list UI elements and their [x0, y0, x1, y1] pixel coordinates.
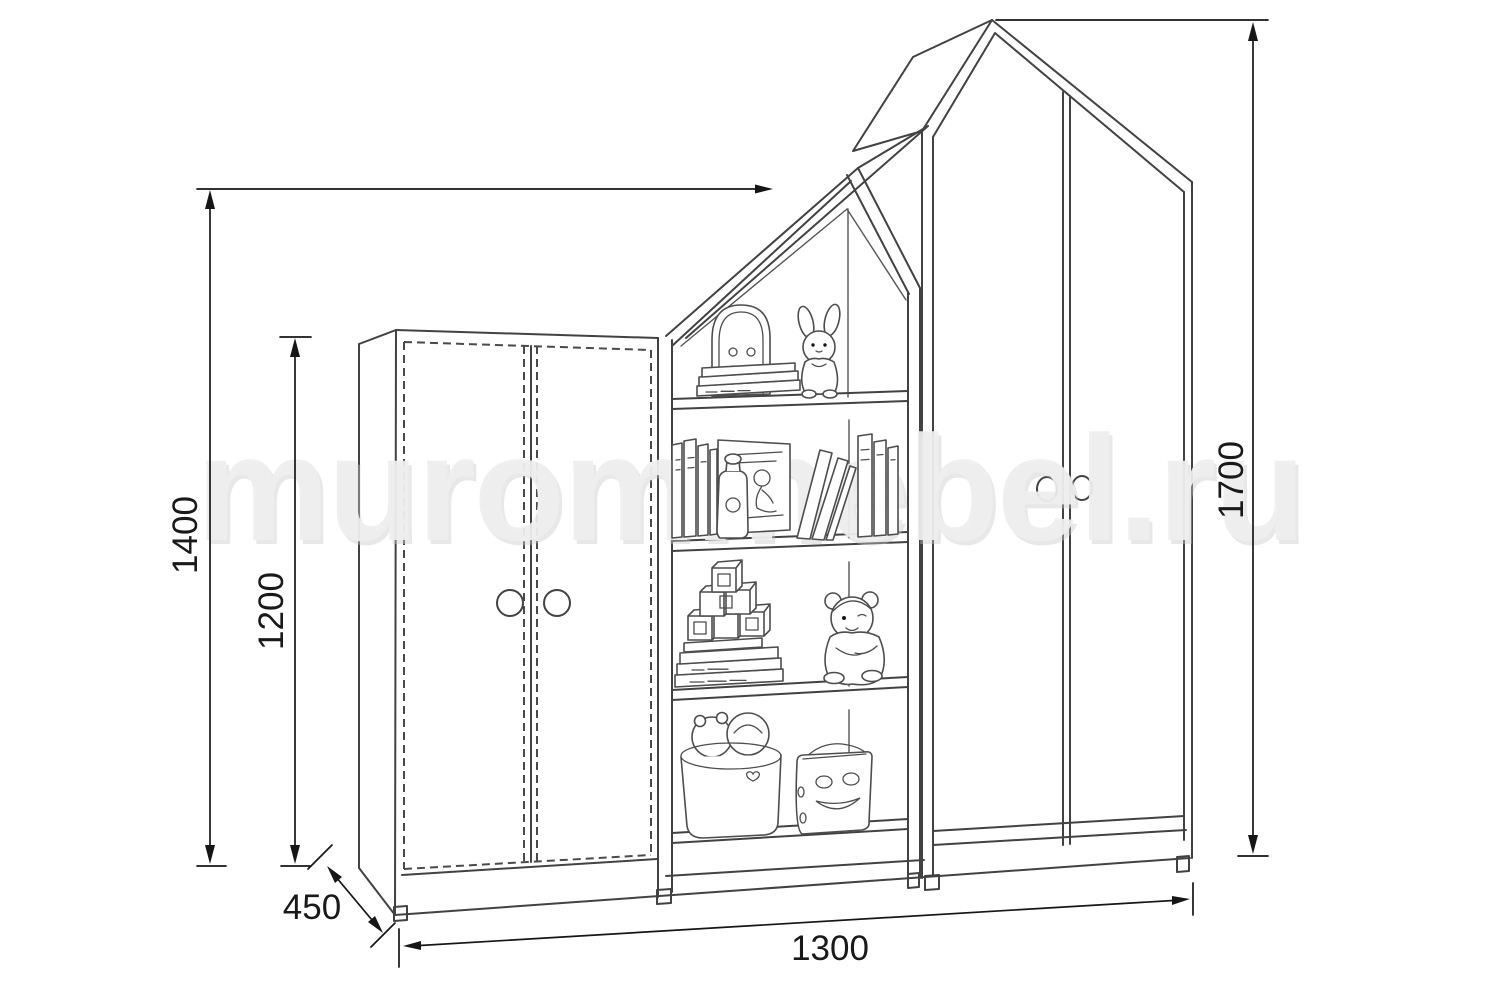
books-row — [672, 434, 898, 540]
dim-label-1200: 1200 — [252, 572, 291, 650]
dim-label-1300: 1300 — [791, 929, 869, 968]
dim-label-1400: 1400 — [166, 496, 205, 574]
left-door-handle-right — [544, 590, 570, 616]
left-door-handle-left — [497, 590, 523, 616]
blocks-and-teddy — [675, 560, 884, 687]
book-stack-top — [697, 363, 800, 396]
dimension-1300: 1300 — [399, 883, 1193, 968]
dim-label-450: 450 — [283, 888, 341, 927]
dimension-450: 450 — [283, 845, 395, 947]
furniture-dimension-drawing: murommebel.ru murommebel.ru — [0, 0, 1500, 1000]
toy-baskets — [681, 713, 872, 839]
bunny-plush — [795, 303, 842, 398]
dim-label-1700: 1700 — [1212, 441, 1251, 519]
drawing-svg: murommebel.ru murommebel.ru — [0, 0, 1500, 1000]
